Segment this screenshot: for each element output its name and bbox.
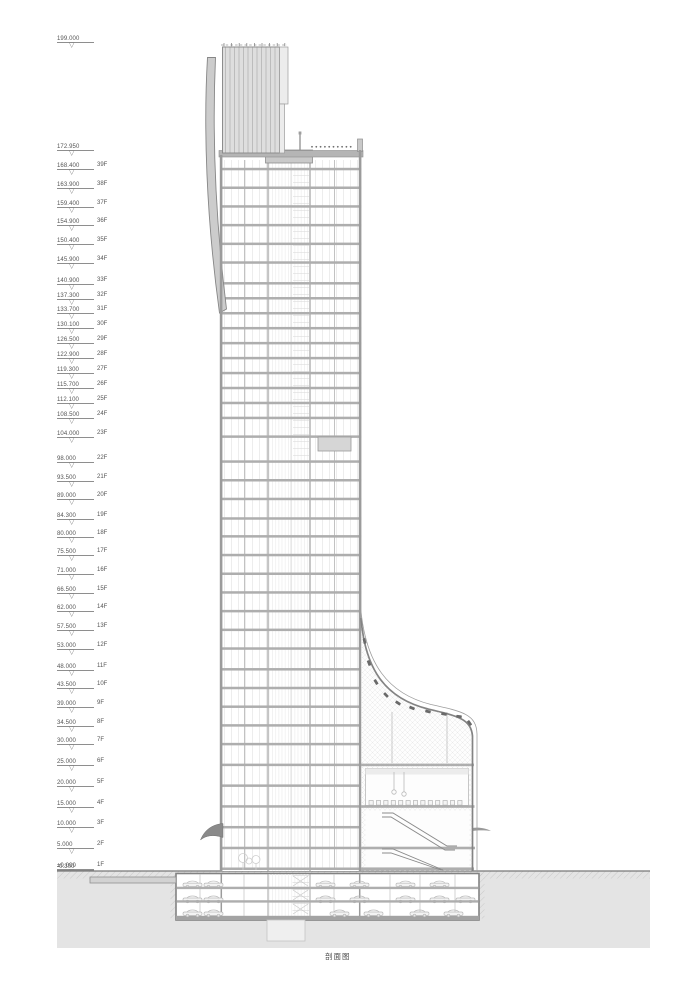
entrance-eave (201, 824, 224, 841)
podium (361, 612, 491, 872)
section-drawing-sheet: 199.000▽172.950▽168.400▽39F163.900▽38F15… (0, 0, 700, 989)
escalator-hall (366, 811, 470, 870)
building-section-drawing (0, 0, 700, 989)
tower-core (266, 150, 313, 871)
podium-canopy (472, 828, 491, 831)
drawing-caption: 剖面图 (325, 951, 351, 962)
